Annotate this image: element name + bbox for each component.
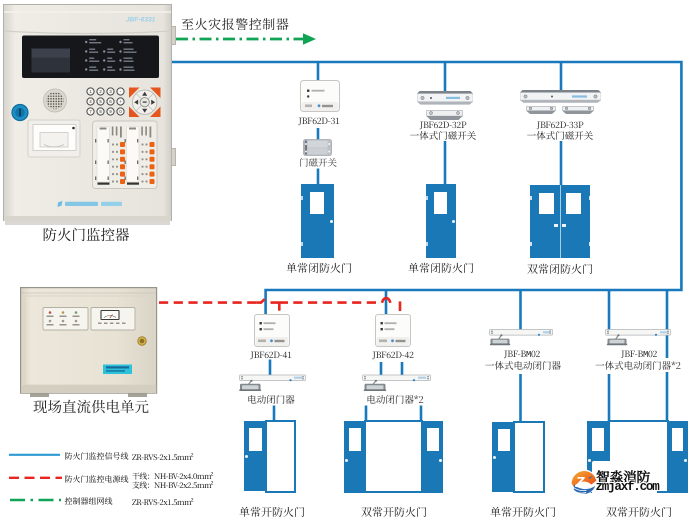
svg-text:JBF-6331: JBF-6331 — [126, 17, 156, 24]
svg-text:Z: Z — [575, 475, 586, 491]
